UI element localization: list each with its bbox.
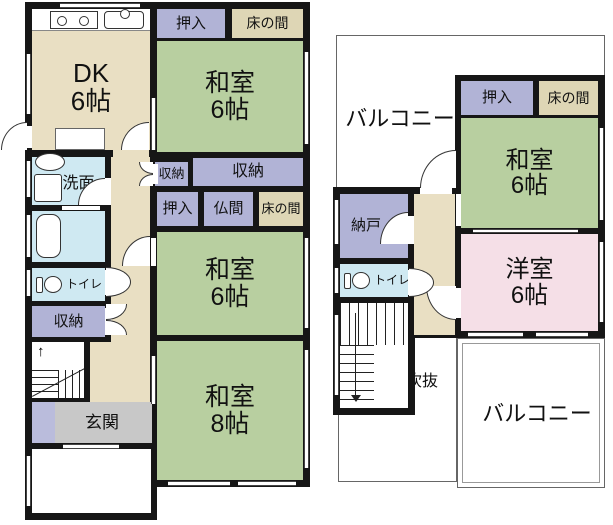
window-nando-left (334, 200, 339, 244)
room-toilet-2f-label: トイレ (374, 274, 410, 287)
balcony-top-label: バルコニー (345, 101, 455, 133)
sliding-washitsu-yoshitsu (473, 229, 578, 233)
room-tokonoma-2f: 床の間 (539, 81, 598, 115)
room-washitsu-2f: 和室6帖 (461, 118, 598, 228)
floor-plan-canvas: DK6帖押入床の間和室6帖洗面トイレ収納玄関収納収納押入仏間床の間和室6帖和室8… (0, 0, 613, 525)
room-tokonoma-2f-label: 床の間 (548, 91, 590, 106)
window-washitsu-2f-right (599, 128, 604, 220)
window-toilet-2f-left (334, 268, 339, 293)
window-yoshitsu-bottom-1 (468, 332, 523, 337)
opening-corr-washitsu-2f (456, 194, 461, 226)
window-yoshitsu-right (599, 242, 604, 322)
balcony-bottom: バルコニー (457, 338, 605, 488)
opening-yoshitsu (456, 288, 461, 318)
staircase-2f (340, 303, 408, 408)
floor-plan-2f: バルコニー吹抜バルコニー納戸トイレ押入床の間和室6帖洋室6帖 (0, 0, 613, 525)
room-oshiire-2f: 押入 (461, 81, 533, 115)
toilet-icon (344, 271, 371, 291)
room-nando-label: 納戸 (351, 218, 381, 234)
opening-nando (408, 216, 414, 244)
room-toilet-2f: トイレ (340, 264, 408, 297)
room-yoshitsu-label: 洋室6帖 (506, 257, 554, 307)
room-yoshitsu: 洋室6帖 (461, 234, 598, 331)
room-washitsu-2f-label: 和室6帖 (506, 148, 554, 198)
window-stairs-left (334, 315, 339, 395)
window-yoshitsu-bottom-2 (536, 332, 588, 337)
balcony-bottom-label: バルコニー (482, 396, 592, 428)
room-oshiire-2f-label: 押入 (482, 90, 512, 106)
opening-balcony (420, 188, 452, 194)
